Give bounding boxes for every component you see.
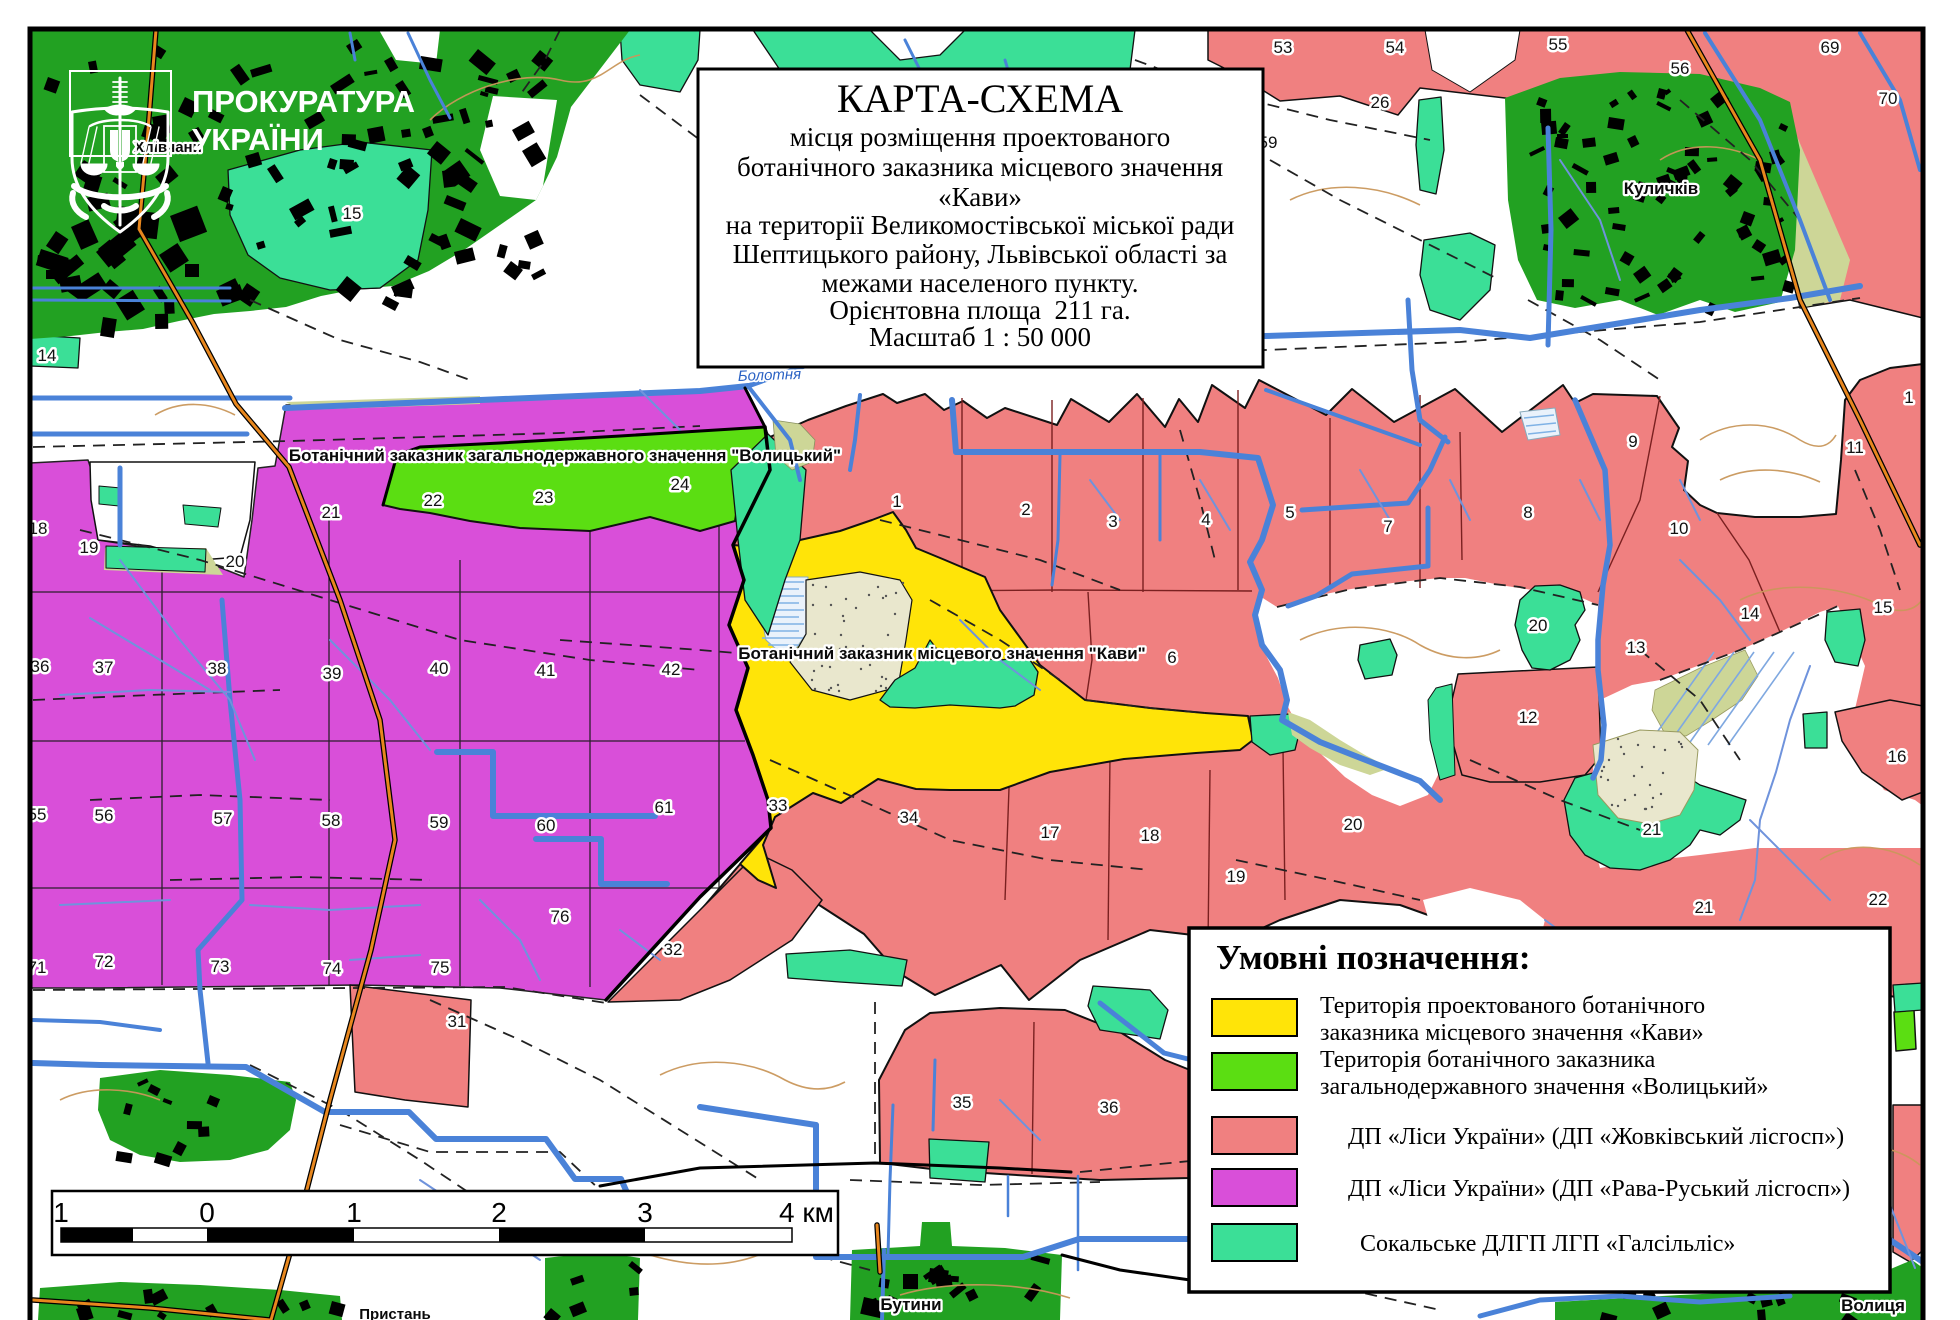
svg-text:2: 2 — [1021, 500, 1030, 519]
svg-text:Орієнтовна площа 211 га.: Орієнтовна площа 211 га. — [829, 295, 1130, 325]
svg-text:10: 10 — [1670, 519, 1689, 538]
svg-text:61: 61 — [655, 798, 674, 817]
svg-text:ПРОКУРАТУРА: ПРОКУРАТУРА — [192, 84, 415, 119]
svg-text:Масштаб 1 : 50 000: Масштаб 1 : 50 000 — [869, 322, 1091, 352]
svg-text:0: 0 — [199, 1197, 215, 1228]
svg-text:23: 23 — [535, 488, 554, 507]
svg-text:38: 38 — [208, 659, 227, 678]
svg-text:19: 19 — [80, 538, 99, 557]
svg-text:41: 41 — [537, 661, 556, 680]
svg-text:75: 75 — [431, 958, 450, 977]
svg-text:54: 54 — [1386, 38, 1405, 57]
svg-text:3: 3 — [637, 1197, 653, 1228]
svg-text:ДП «Ліси України» (ДП «Жовківс: ДП «Ліси України» (ДП «Жовківський лісго… — [1348, 1124, 1844, 1150]
svg-text:«Кави»: «Кави» — [938, 182, 1022, 212]
svg-text:місця розміщення проектованого: місця розміщення проектованого — [790, 122, 1171, 152]
svg-text:1: 1 — [53, 1197, 69, 1228]
svg-text:15: 15 — [1874, 598, 1893, 617]
svg-text:1: 1 — [346, 1197, 362, 1228]
svg-text:Сокальське ДЛГП ЛГП «Галсільлі: Сокальське ДЛГП ЛГП «Галсільліс» — [1360, 1231, 1735, 1257]
svg-text:ботанічного заказника місцевог: ботанічного заказника місцевого значення — [737, 152, 1223, 182]
svg-text:59: 59 — [430, 813, 449, 832]
svg-text:межами населеного пункту.: межами населеного пункту. — [822, 268, 1139, 298]
svg-text:УКРАЇНИ: УКРАЇНИ — [192, 122, 324, 157]
svg-text:73: 73 — [211, 957, 230, 976]
svg-text:19: 19 — [1227, 867, 1246, 886]
svg-text:Територія ботанічного заказник: Територія ботанічного заказника — [1320, 1047, 1656, 1073]
svg-text:24: 24 — [671, 475, 690, 494]
svg-text:70: 70 — [1879, 89, 1898, 108]
svg-text:22: 22 — [424, 491, 443, 510]
svg-text:загальнодержавного значення «В: загальнодержавного значення «Волицький» — [1320, 1074, 1769, 1100]
svg-text:14: 14 — [1741, 604, 1760, 623]
svg-text:4 км: 4 км — [779, 1197, 834, 1228]
svg-text:Умовні позначення:: Умовні позначення: — [1216, 938, 1531, 977]
svg-text:на території Великомостівської: на території Великомостівської міської р… — [726, 210, 1235, 240]
svg-text:36: 36 — [31, 657, 50, 676]
svg-text:37: 37 — [95, 658, 114, 677]
svg-text:Куличків: Куличків — [1624, 179, 1698, 198]
svg-text:КАРТА-СХЕМА: КАРТА-СХЕМА — [837, 76, 1123, 121]
svg-text:1: 1 — [1904, 388, 1913, 407]
svg-text:17: 17 — [1041, 823, 1060, 842]
svg-text:39: 39 — [323, 664, 342, 683]
svg-text:4: 4 — [1201, 510, 1210, 529]
svg-text:Шептицького району, Львівської: Шептицького району, Львівської області з… — [733, 239, 1228, 269]
svg-text:20: 20 — [226, 552, 245, 571]
svg-text:21: 21 — [1695, 898, 1714, 917]
svg-text:6: 6 — [1167, 648, 1176, 667]
svg-text:36: 36 — [1100, 1098, 1119, 1117]
svg-text:56: 56 — [95, 806, 114, 825]
svg-text:18: 18 — [1141, 826, 1160, 845]
svg-text:16: 16 — [1888, 747, 1907, 766]
svg-text:40: 40 — [430, 659, 449, 678]
svg-text:Пристань: Пристань — [359, 1306, 430, 1320]
svg-text:9: 9 — [1628, 432, 1637, 451]
svg-text:Ботанічний заказник загальноде: Ботанічний заказник загальнодержавного з… — [289, 446, 841, 465]
svg-text:8: 8 — [1523, 503, 1532, 522]
svg-text:Волиця: Волиця — [1841, 1296, 1905, 1315]
svg-text:76: 76 — [551, 907, 570, 926]
svg-text:22: 22 — [1869, 890, 1888, 909]
svg-text:12: 12 — [1519, 708, 1538, 727]
svg-text:13: 13 — [1627, 638, 1646, 657]
svg-text:42: 42 — [662, 660, 681, 679]
svg-text:14: 14 — [38, 346, 57, 365]
svg-text:53: 53 — [1274, 38, 1293, 57]
svg-text:31: 31 — [448, 1012, 467, 1031]
svg-text:35: 35 — [953, 1093, 972, 1112]
svg-text:32: 32 — [664, 940, 683, 959]
svg-text:26: 26 — [1371, 93, 1390, 112]
svg-text:20: 20 — [1529, 616, 1548, 635]
svg-text:Територія проектованого ботані: Територія проектованого ботанічного — [1320, 993, 1705, 1019]
svg-text:5: 5 — [1285, 503, 1294, 522]
svg-text:55: 55 — [1549, 35, 1568, 54]
svg-text:7: 7 — [1383, 517, 1392, 536]
svg-text:Болотня: Болотня — [738, 366, 802, 385]
svg-text:56: 56 — [1671, 59, 1690, 78]
svg-text:15: 15 — [343, 204, 362, 223]
svg-text:20: 20 — [1344, 815, 1363, 834]
svg-text:2: 2 — [491, 1197, 507, 1228]
svg-text:11: 11 — [1846, 438, 1864, 457]
svg-text:58: 58 — [322, 811, 341, 830]
svg-text:69: 69 — [1821, 38, 1840, 57]
svg-text:34: 34 — [900, 808, 919, 827]
svg-text:3: 3 — [1108, 512, 1117, 531]
svg-text:74: 74 — [323, 959, 342, 978]
svg-text:Бутини: Бутини — [880, 1295, 941, 1314]
svg-text:21: 21 — [1643, 820, 1662, 839]
svg-text:1: 1 — [892, 492, 901, 511]
svg-text:Ботанічний заказник місцевого: Ботанічний заказник місцевого значення "… — [738, 644, 1146, 663]
svg-text:72: 72 — [95, 952, 114, 971]
svg-text:ДП «Ліси України» (ДП «Рава-Ру: ДП «Ліси України» (ДП «Рава-Руський лісг… — [1348, 1176, 1850, 1202]
svg-text:заказника місцевого значення «: заказника місцевого значення «Кави» — [1320, 1020, 1704, 1046]
svg-text:60: 60 — [537, 816, 556, 835]
svg-text:33: 33 — [769, 796, 788, 815]
svg-text:57: 57 — [214, 809, 233, 828]
svg-text:21: 21 — [322, 503, 341, 522]
